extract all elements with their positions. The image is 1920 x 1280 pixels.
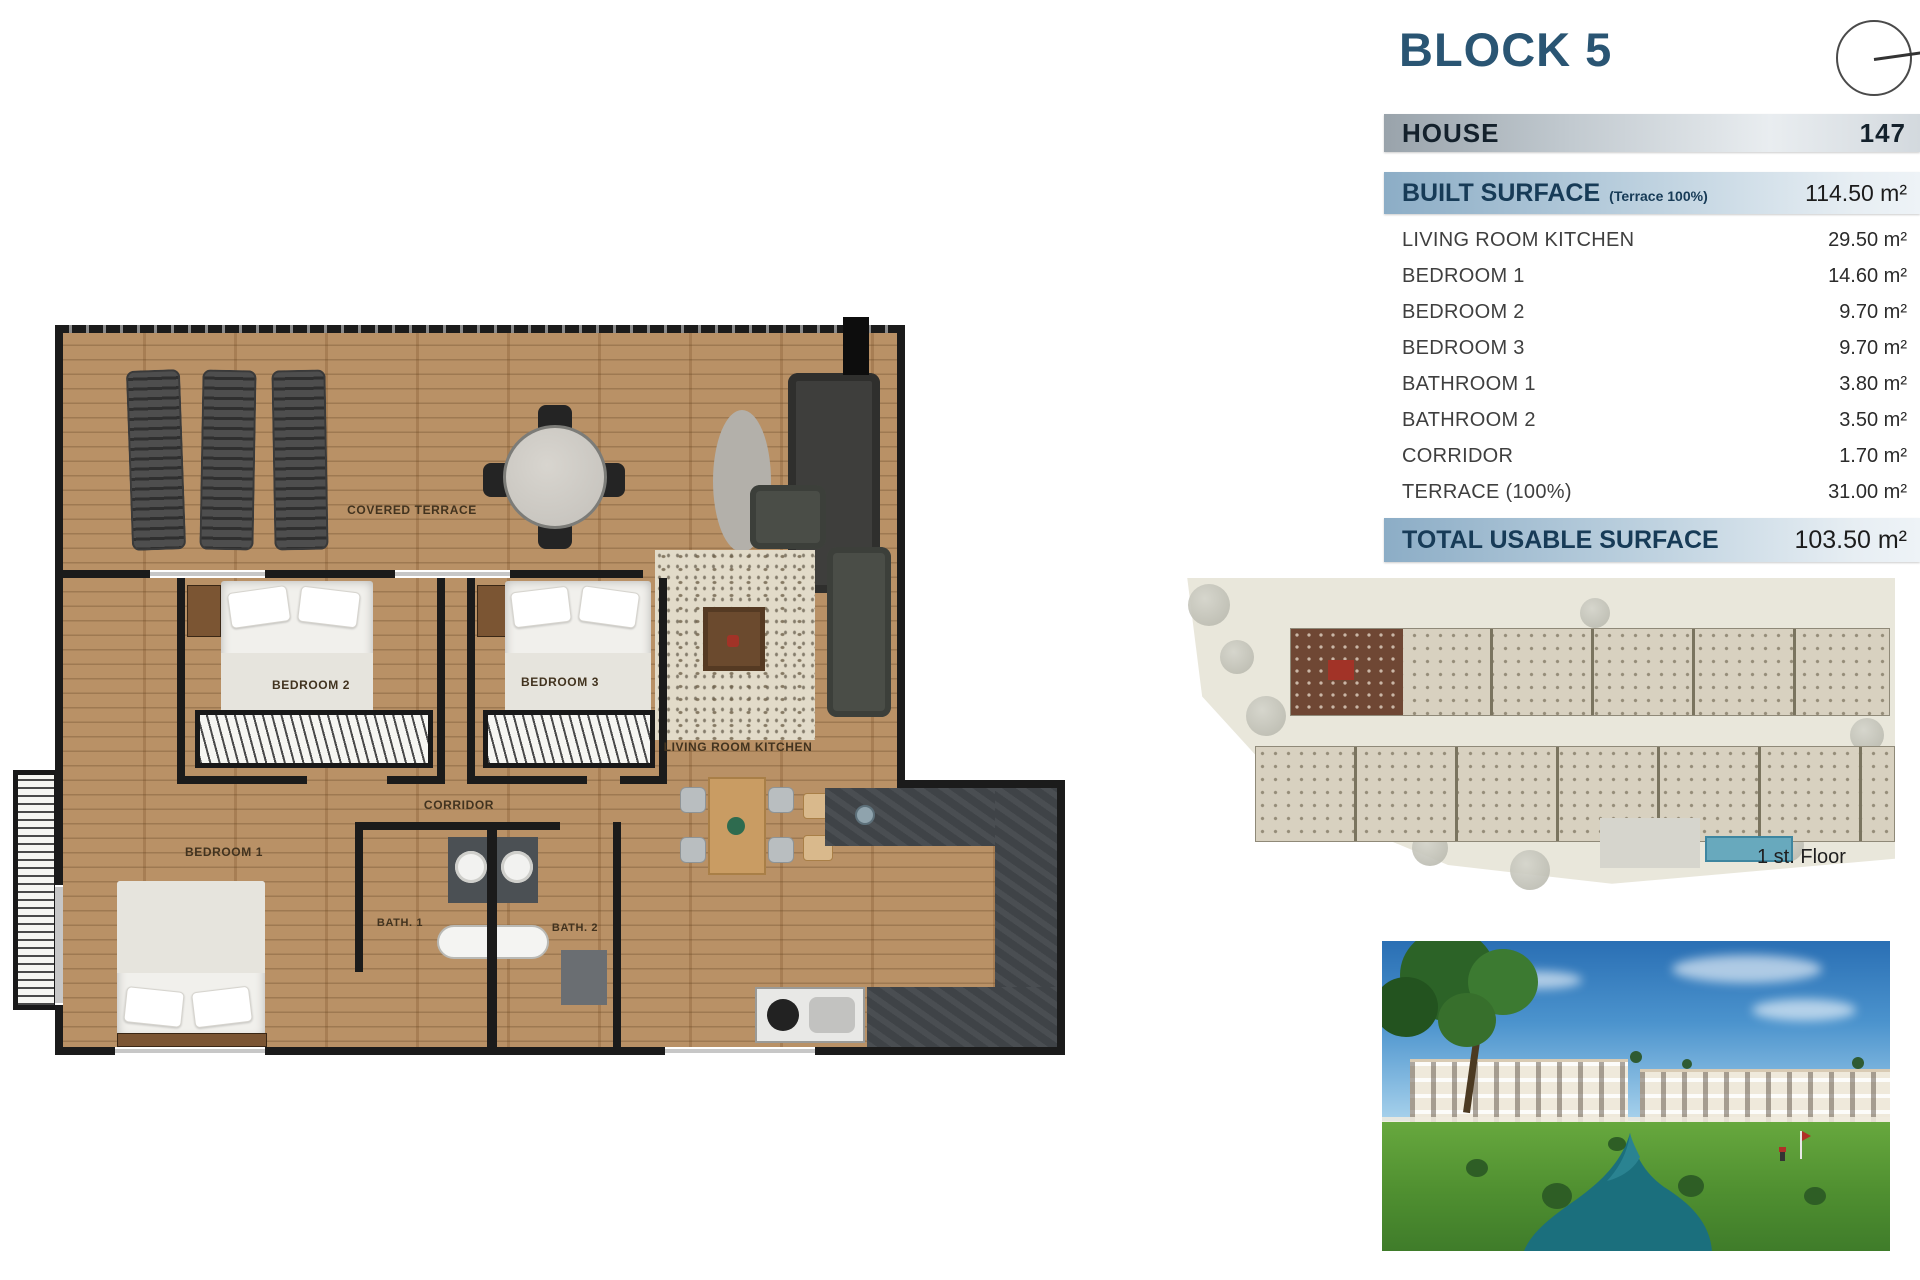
living-sofa: [827, 547, 891, 717]
tree: [1580, 598, 1610, 628]
surface-row: BEDROOM 1 14.60 m²: [1384, 258, 1920, 294]
bush: [1608, 1137, 1626, 1151]
surface-row: TERRACE (100%) 31.00 m²: [1384, 474, 1920, 510]
wall-segment: [355, 822, 560, 830]
side-balcony: [13, 770, 59, 1010]
table-plant: [727, 817, 745, 835]
room-area: 9.70 m²: [1839, 337, 1907, 360]
built-surface-bar: BUILT SURFACE (Terrace 100%) 114.50 m²: [1384, 172, 1920, 214]
bush: [1466, 1159, 1488, 1177]
room-label-bath1: BATH. 1: [377, 917, 423, 929]
pillow: [578, 585, 640, 629]
wall-segment: [1057, 780, 1065, 1055]
room-label-bedroom1: BEDROOM 1: [185, 845, 263, 859]
window: [150, 570, 265, 578]
room-name: BEDROOM 3: [1402, 337, 1525, 360]
house-number: 147: [1860, 118, 1906, 149]
room-area: 3.50 m²: [1839, 409, 1907, 432]
room-name: LIVING ROOM KITCHEN: [1402, 229, 1634, 252]
pillow: [191, 986, 253, 1029]
built-surface-label: BUILT SURFACE: [1402, 179, 1600, 208]
blanket: [117, 881, 265, 973]
dining-chair: [680, 787, 706, 813]
wall-segment: [487, 822, 497, 1047]
room-area: 9.70 m²: [1839, 301, 1907, 324]
palm-tree: [1630, 1051, 1642, 1063]
house-bar: HOUSE 147: [1384, 114, 1920, 152]
window: [665, 1047, 815, 1055]
page-title: BLOCK 5: [1399, 22, 1612, 77]
tree: [1510, 850, 1550, 890]
room-label-bedroom2: BEDROOM 2: [272, 678, 350, 692]
built-surface-value: 114.50 m²: [1805, 180, 1907, 207]
surface-row: LIVING ROOM KITCHEN 29.50 m²: [1384, 222, 1920, 258]
pillow: [227, 585, 291, 629]
floor-plan: COVERED TERRACE BEDROOM 2 BEDROOM 3 CORR…: [55, 325, 1070, 1060]
palm-tree: [1682, 1059, 1692, 1069]
shower: [561, 950, 607, 1005]
bush: [1542, 1183, 1572, 1209]
building-row: [1255, 746, 1895, 842]
room-name: BATHROOM 1: [1402, 373, 1536, 396]
wardrobe: [483, 710, 655, 768]
compass-icon: [1836, 20, 1912, 96]
room-name: TERRACE (100%): [1402, 481, 1572, 504]
sun-lounger: [271, 370, 328, 551]
surface-row: BEDROOM 2 9.70 m²: [1384, 294, 1920, 330]
surface-rows: LIVING ROOM KITCHEN 29.50 m² BEDROOM 1 1…: [1384, 222, 1920, 510]
room-name: CORRIDOR: [1402, 445, 1513, 468]
dining-chair: [680, 837, 706, 863]
chimney: [843, 317, 869, 375]
palm-tree: [1852, 1057, 1864, 1069]
wall-segment: [613, 822, 621, 1047]
dining-chair: [768, 787, 794, 813]
bush: [1804, 1187, 1826, 1205]
kitchen-counter: [867, 987, 1057, 1047]
stove-burner: [767, 999, 799, 1031]
kitchen-sink: [855, 805, 875, 825]
wardrobe: [195, 710, 433, 768]
wall-segment: [177, 776, 307, 784]
window: [55, 885, 63, 1005]
wall-segment: [897, 780, 1065, 788]
room-name: BEDROOM 2: [1402, 301, 1525, 324]
dining-chair: [768, 837, 794, 863]
tree: [1246, 696, 1286, 736]
pillow: [123, 986, 184, 1028]
development-photo: [1382, 941, 1890, 1251]
wall-segment: [467, 578, 475, 784]
tree-foliage: [1438, 993, 1496, 1047]
room-name: BEDROOM 1: [1402, 265, 1525, 288]
round-dining-table: [503, 425, 607, 529]
coffee-table-decor: [727, 635, 739, 647]
stove-tray: [809, 997, 855, 1033]
wall-segment: [55, 325, 905, 333]
nightstand: [187, 585, 221, 637]
bed-headboard: [117, 1033, 267, 1047]
site-paving: [1600, 818, 1700, 868]
surface-row: BEDROOM 3 9.70 m²: [1384, 330, 1920, 366]
site-plan: 1 st. Floor: [1150, 578, 1895, 890]
room-area: 1.70 m²: [1839, 445, 1907, 468]
pillow: [297, 585, 361, 628]
bush: [1678, 1175, 1704, 1197]
room-area: 29.50 m²: [1828, 229, 1907, 252]
room-label-living: LIVING ROOM KITCHEN: [664, 740, 813, 754]
sun-lounger: [199, 370, 256, 551]
flag: [1802, 1131, 1811, 1141]
room-area: 31.00 m²: [1828, 481, 1907, 504]
surface-row: BATHROOM 1 3.80 m²: [1384, 366, 1920, 402]
total-surface-bar: TOTAL USABLE SURFACE 103.50 m²: [1384, 518, 1920, 562]
wall-segment: [355, 822, 363, 972]
room-label-bedroom3: BEDROOM 3: [521, 675, 599, 689]
wall-segment: [897, 325, 905, 788]
window: [395, 570, 510, 578]
surface-row: BATHROOM 2 3.50 m²: [1384, 402, 1920, 438]
wall-segment: [177, 578, 185, 784]
wall-segment: [467, 776, 587, 784]
highlighted-unit-accent: [1328, 660, 1354, 680]
room-area: 3.80 m²: [1839, 373, 1907, 396]
brochure-page: COVERED TERRACE BEDROOM 2 BEDROOM 3 CORR…: [0, 0, 1920, 1280]
sun-lounger: [126, 369, 186, 551]
armchair: [750, 485, 826, 549]
room-name: BATHROOM 2: [1402, 409, 1536, 432]
wall-segment: [387, 776, 445, 784]
tree: [1220, 640, 1254, 674]
window: [115, 1047, 265, 1055]
built-surface-note: (Terrace 100%): [1609, 188, 1708, 204]
tree: [1188, 584, 1230, 626]
bath-sink: [501, 851, 533, 883]
total-surface-label: TOTAL USABLE SURFACE: [1402, 526, 1719, 555]
golfer-shirt: [1779, 1147, 1786, 1152]
compass-needle: [1874, 51, 1920, 61]
house-label: HOUSE: [1402, 118, 1499, 149]
bath-sink: [455, 851, 487, 883]
room-label-bath2: BATH. 2: [552, 922, 598, 934]
room-area: 14.60 m²: [1828, 265, 1907, 288]
room-label-corridor: CORRIDOR: [424, 798, 494, 812]
wall-segment: [437, 578, 445, 784]
room-label-covered-terrace: COVERED TERRACE: [347, 503, 477, 517]
floor-caption: 1 st. Floor: [1757, 846, 1846, 869]
total-surface-value: 103.50 m²: [1794, 526, 1907, 555]
wall-segment: [620, 776, 667, 784]
pillow: [510, 586, 572, 629]
surface-row: CORRIDOR 1.70 m²: [1384, 438, 1920, 474]
bed: [117, 881, 265, 1039]
